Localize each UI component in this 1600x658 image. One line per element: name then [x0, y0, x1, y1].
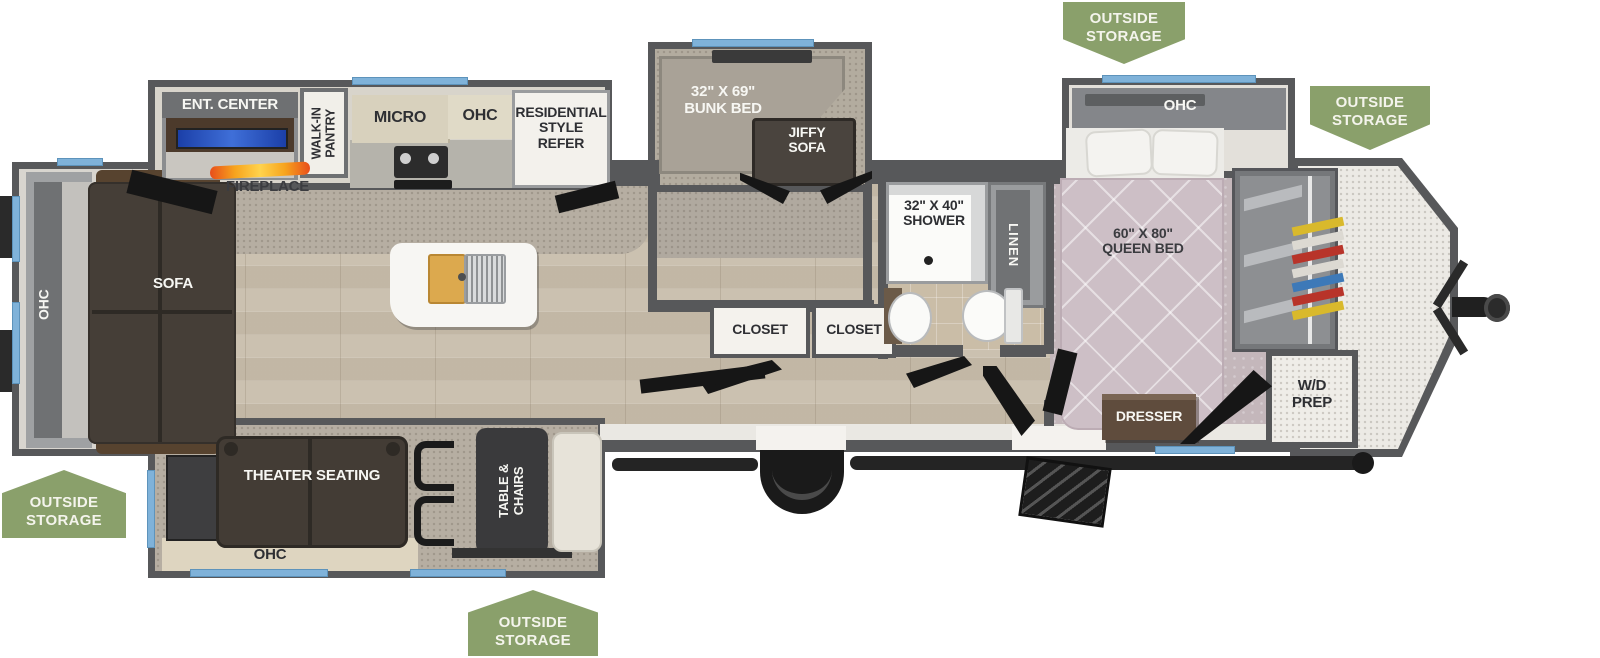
cooktop-burner-1	[400, 153, 411, 164]
queen-bed-blanket	[1060, 178, 1224, 430]
micro-label: MICRO	[354, 109, 446, 127]
window-bedroom-bottom	[1155, 446, 1235, 454]
theater-tv-cabinet	[166, 455, 218, 541]
tv-screen	[176, 128, 288, 149]
shower-drain	[924, 256, 933, 265]
bathroom-bottom-wall-2	[1000, 345, 1046, 357]
theater-headrest-1	[224, 442, 238, 456]
walk-in-pantry-label: WALK-IN PANTRY	[310, 107, 339, 159]
window-rear-1	[12, 196, 20, 262]
window-theater-slide-bottom-1	[190, 569, 328, 577]
ent-center-label: ENT. CENTER	[164, 97, 296, 114]
awning-bar-left	[612, 458, 758, 471]
wd-prep-label: W/D PREP	[1272, 378, 1352, 411]
outside-storage-badge-rear-bottom-label: OUTSIDE STORAGE	[26, 494, 102, 538]
window-rear-2	[12, 302, 20, 384]
pillow-2	[1151, 129, 1219, 177]
theater-seat-seam	[308, 438, 312, 546]
dining-chair-2	[414, 496, 454, 546]
bunk-bed-label: 32" X 69" BUNK BED	[658, 84, 788, 117]
refer-label: RESIDENTIAL STYLE REFER	[514, 105, 608, 151]
window-theater-slide-bottom-2	[410, 569, 506, 577]
island-faucet	[458, 273, 466, 281]
table-chairs-label-box: TABLE & CHAIRS	[472, 448, 552, 534]
window-rear-top	[57, 158, 103, 166]
outside-storage-badge-front-label: OUTSIDE STORAGE	[1332, 94, 1408, 150]
kitchen-ohc-label: OHC	[448, 107, 512, 125]
outside-storage-badge-door-side-label: OUTSIDE STORAGE	[495, 614, 571, 656]
jiffy-sofa-label: JIFFY SOFA	[772, 125, 842, 156]
awning-end-cap	[1352, 452, 1374, 474]
window-bunk-slide	[692, 39, 814, 47]
theater-headrest-2	[386, 442, 400, 456]
bedroom-ohc-label: OHC	[1140, 98, 1220, 115]
queen-bed-label: 60" X 80" QUEEN BED	[1084, 226, 1202, 257]
linen-label: LINEN	[1006, 223, 1020, 267]
theater-seating	[216, 436, 408, 548]
shower-label: 32" X 40" SHOWER	[888, 198, 980, 229]
window-theater-slide-side	[147, 470, 155, 548]
toilet-tank	[1004, 288, 1023, 344]
closet-2-label: CLOSET	[814, 322, 894, 337]
entry-door-opening	[756, 426, 846, 450]
dresser-label: DRESSER	[1104, 409, 1194, 424]
sofa-label: SOFA	[138, 276, 208, 293]
table-chairs-label: TABLE & CHAIRS	[497, 464, 527, 518]
window-kitchen-slide	[352, 77, 468, 85]
bunkroom-left-wall	[648, 184, 657, 312]
walk-in-pantry-label-box: WALK-IN PANTRY	[288, 96, 360, 170]
sofa-center-seam	[92, 310, 232, 314]
fireplace-label: FIREPLACE	[205, 179, 330, 196]
range-vent	[394, 180, 452, 189]
island-sink	[464, 254, 506, 304]
rear-ohc-label-box: OHC	[30, 268, 58, 342]
window-bedroom-slide	[1102, 75, 1256, 83]
outside-storage-badge-rear-bottom: OUTSIDE STORAGE	[2, 470, 126, 538]
outside-storage-badge-bedroom-top-label: OUTSIDE STORAGE	[1086, 10, 1162, 64]
outside-storage-badge-bedroom-top: OUTSIDE STORAGE	[1063, 2, 1185, 64]
floorplan-canvas: OHC SOFA ENT. CENTER FIREPLACE WALK-IN P…	[0, 0, 1600, 658]
linen-label-box: LINEN	[999, 205, 1027, 285]
theater-seating-label: THEATER SEATING	[238, 468, 386, 485]
cooktop-burner-2	[428, 153, 439, 164]
top-wall-segment-2	[865, 160, 1070, 184]
dinette-bench	[552, 432, 602, 552]
bath-sink	[888, 292, 932, 344]
outside-storage-badge-door-side: OUTSIDE STORAGE	[468, 590, 598, 656]
table-base-bar	[452, 548, 572, 558]
bunkroom-right-wall	[863, 184, 872, 312]
closet-1-label: CLOSET	[712, 322, 808, 337]
hitch-jack	[1484, 294, 1510, 322]
outside-storage-badge-front: OUTSIDE STORAGE	[1310, 86, 1430, 150]
bunk-headboard	[712, 50, 812, 63]
theater-ohc-label: OHC	[238, 547, 302, 564]
bedroom-entry-steps	[1018, 456, 1112, 527]
rear-ohc-label: OHC	[36, 290, 51, 321]
dining-chair-1	[414, 441, 454, 491]
pillow-1	[1085, 128, 1153, 177]
